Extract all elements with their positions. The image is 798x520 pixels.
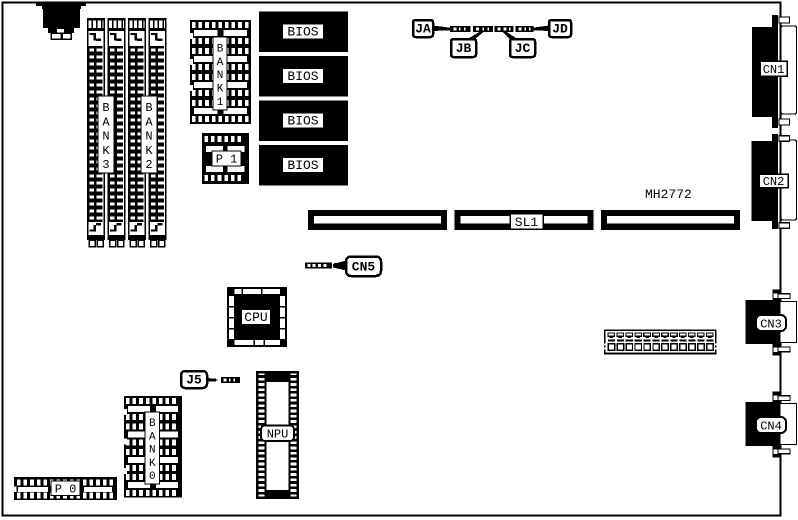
svg-text:NPU: NPU [267,428,289,442]
svg-text:1: 1 [217,97,224,109]
svg-text:CN1: CN1 [763,63,785,77]
svg-text:B: B [102,101,109,115]
svg-text:0: 0 [149,471,156,483]
svg-text:3: 3 [102,158,109,172]
svg-text:JC: JC [515,41,531,56]
svg-text:K: K [145,144,153,158]
svg-text:B: B [149,418,156,430]
svg-text:A: A [217,57,224,69]
svg-text:P 1: P 1 [216,153,238,167]
svg-text:N: N [149,445,156,457]
svg-text:MH2772: MH2772 [645,187,692,202]
svg-text:CN4: CN4 [760,420,782,434]
svg-text:CPU: CPU [244,310,267,325]
svg-text:BIOS: BIOS [287,25,318,40]
svg-text:CN2: CN2 [763,175,785,189]
svg-text:J5: J5 [186,373,202,388]
svg-text:CN3: CN3 [760,318,782,332]
svg-text:K: K [217,84,224,96]
svg-text:JD: JD [552,22,568,37]
svg-text:BIOS: BIOS [287,114,318,129]
svg-text:BIOS: BIOS [287,158,318,173]
svg-text:JB: JB [456,41,472,56]
svg-text:K: K [102,144,110,158]
svg-text:K: K [149,458,156,470]
svg-text:B: B [145,101,152,115]
svg-text:CN5: CN5 [352,259,376,274]
svg-text:P 0: P 0 [55,483,77,497]
svg-text:A: A [149,431,156,443]
svg-text:2: 2 [145,158,152,172]
svg-text:SL1: SL1 [515,215,539,230]
svg-text:JA: JA [415,22,431,37]
svg-text:N: N [217,70,224,82]
svg-text:BIOS: BIOS [287,69,318,84]
svg-text:A: A [102,115,110,129]
svg-text:A: A [145,115,153,129]
svg-text:N: N [145,130,152,144]
svg-text:N: N [102,130,109,144]
svg-text:B: B [217,43,224,55]
